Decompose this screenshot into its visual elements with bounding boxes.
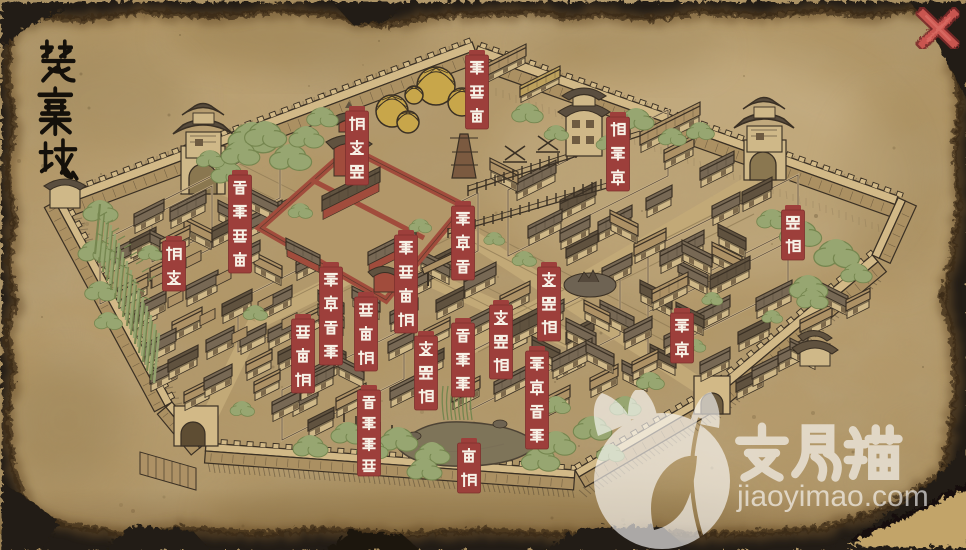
svg-text:jiaoyimao.com: jiaoyimao.com xyxy=(736,480,929,513)
